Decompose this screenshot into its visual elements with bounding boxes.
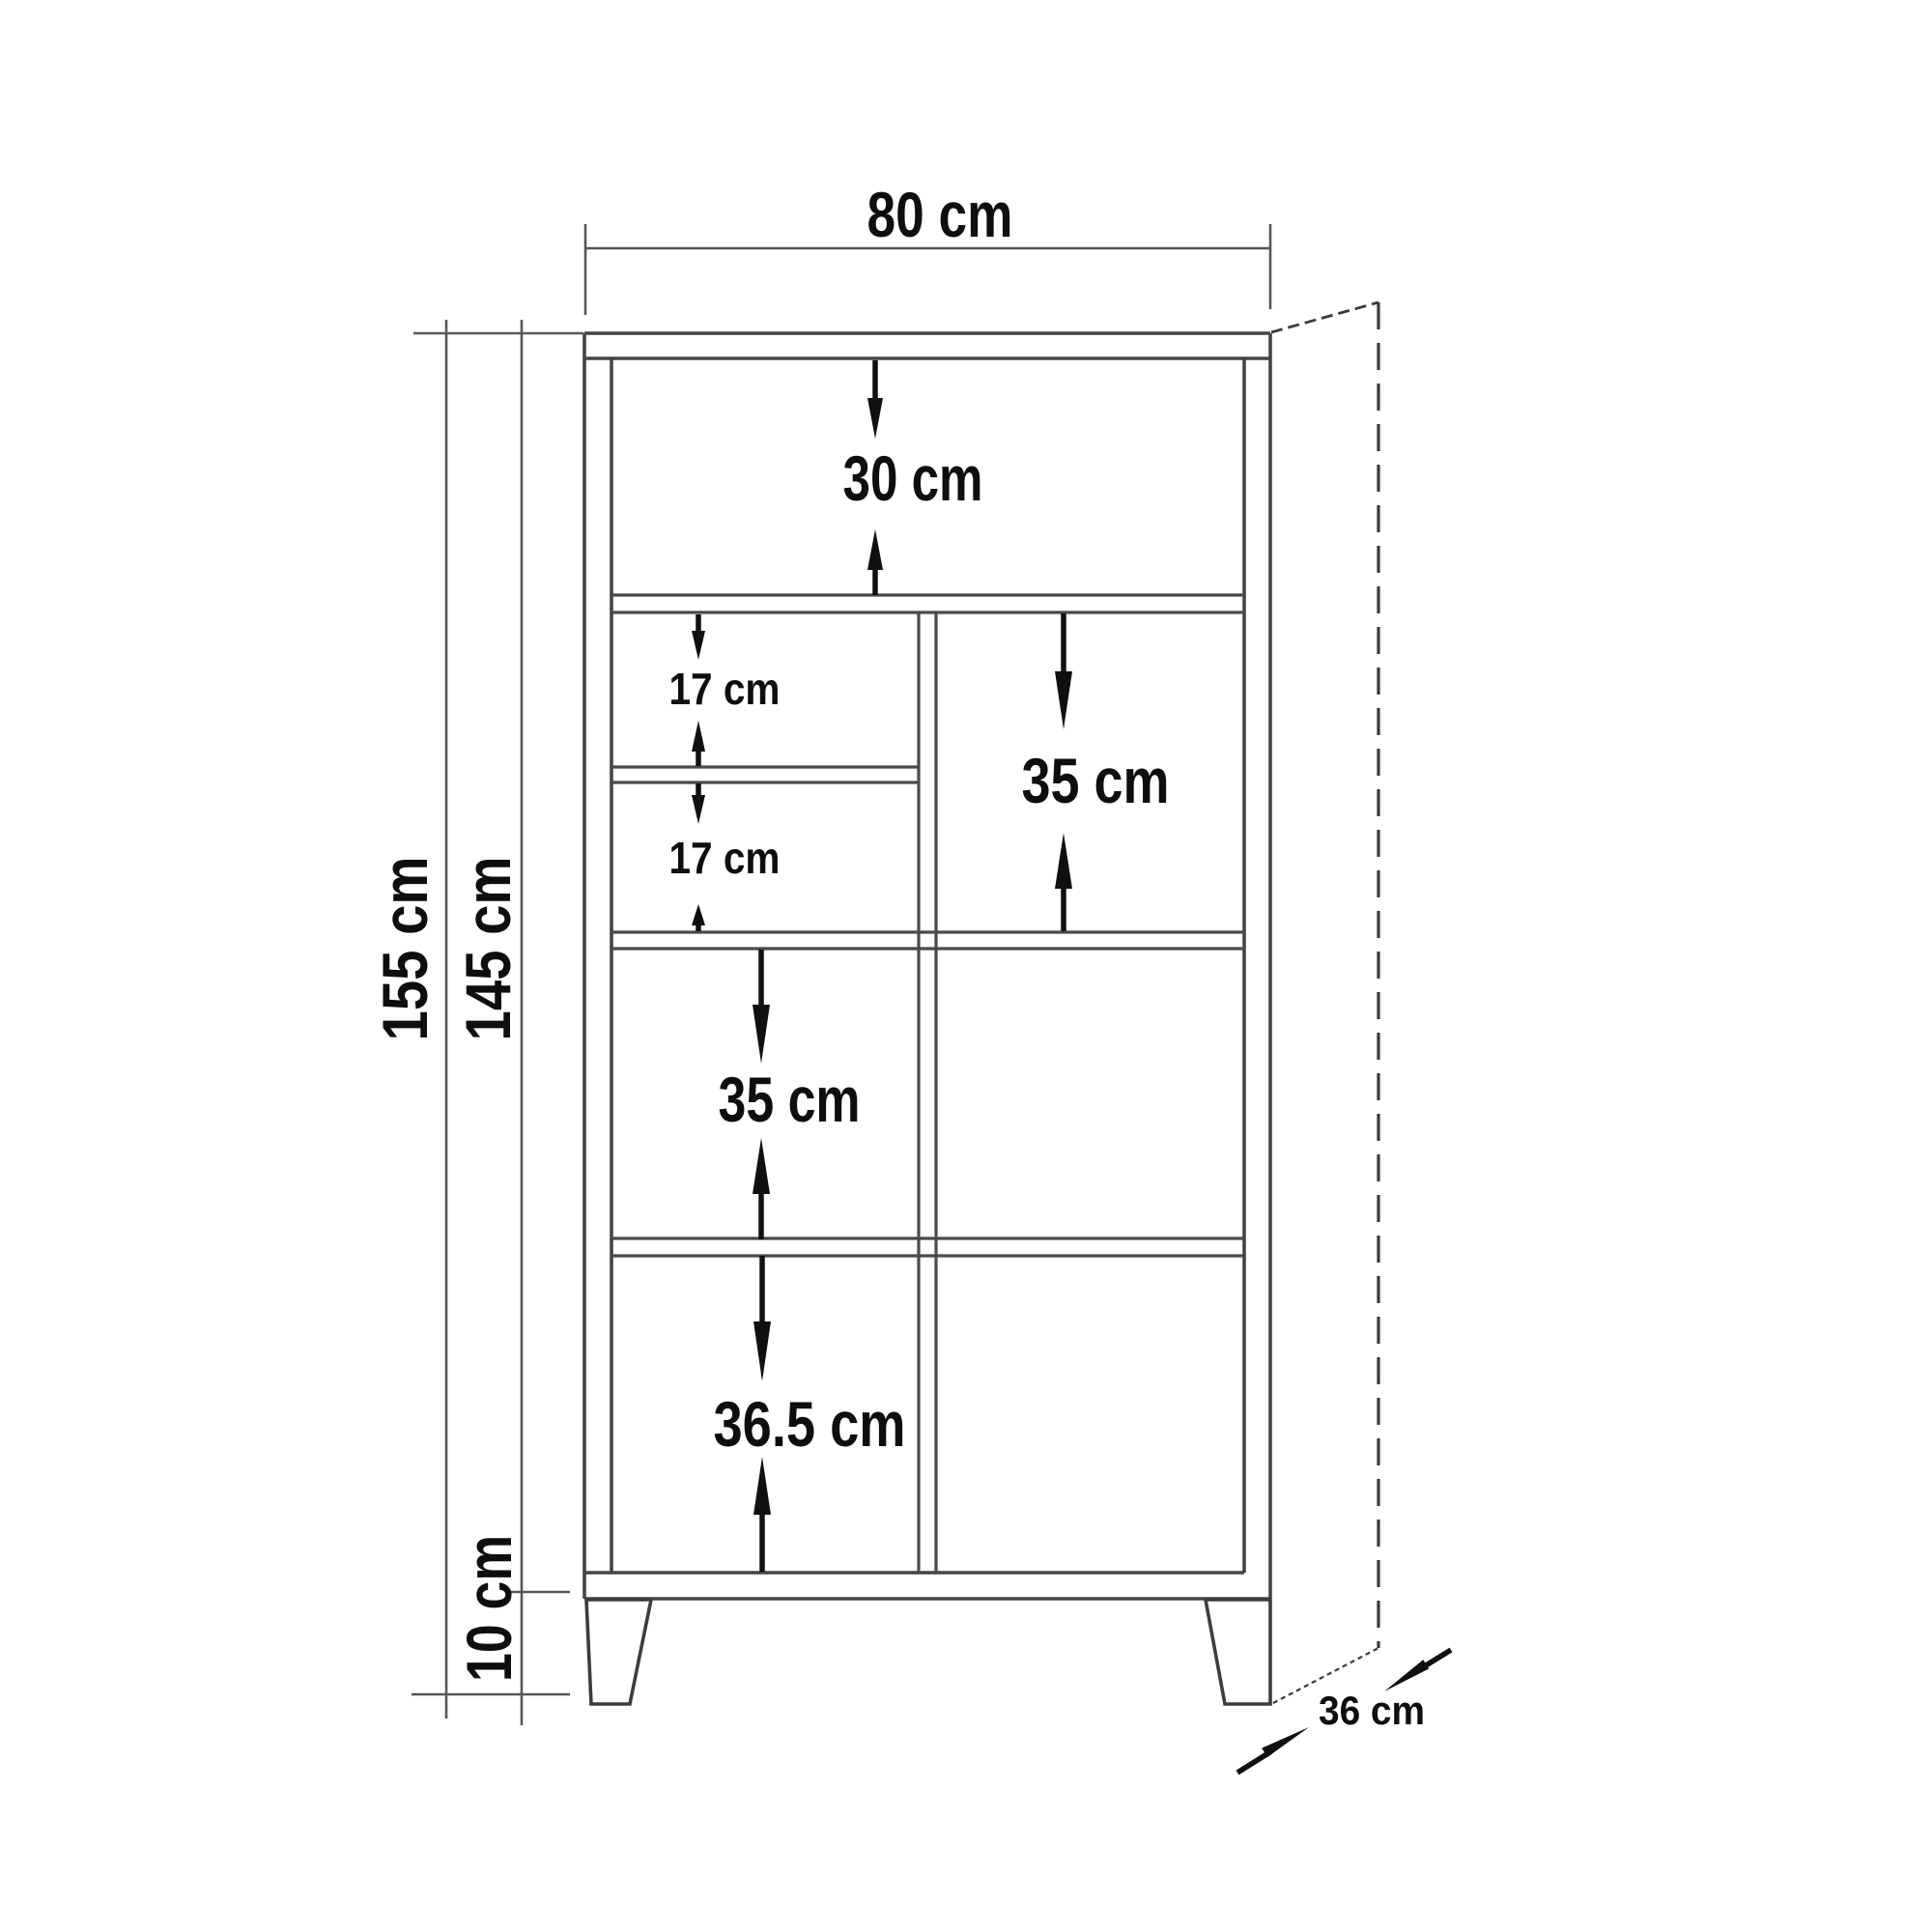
- svg-text:36 cm: 36 cm: [1319, 1688, 1425, 1733]
- svg-text:155 cm: 155 cm: [369, 857, 440, 1041]
- svg-text:35 cm: 35 cm: [1022, 745, 1170, 816]
- svg-text:17 cm: 17 cm: [669, 664, 781, 714]
- svg-text:145 cm: 145 cm: [452, 857, 524, 1041]
- svg-text:36.5 cm: 36.5 cm: [714, 1388, 906, 1460]
- svg-text:30 cm: 30 cm: [843, 442, 983, 514]
- svg-text:10 cm: 10 cm: [453, 1535, 525, 1682]
- svg-text:80 cm: 80 cm: [867, 179, 1013, 250]
- svg-text:17 cm: 17 cm: [669, 833, 781, 883]
- svg-text:35 cm: 35 cm: [719, 1064, 861, 1135]
